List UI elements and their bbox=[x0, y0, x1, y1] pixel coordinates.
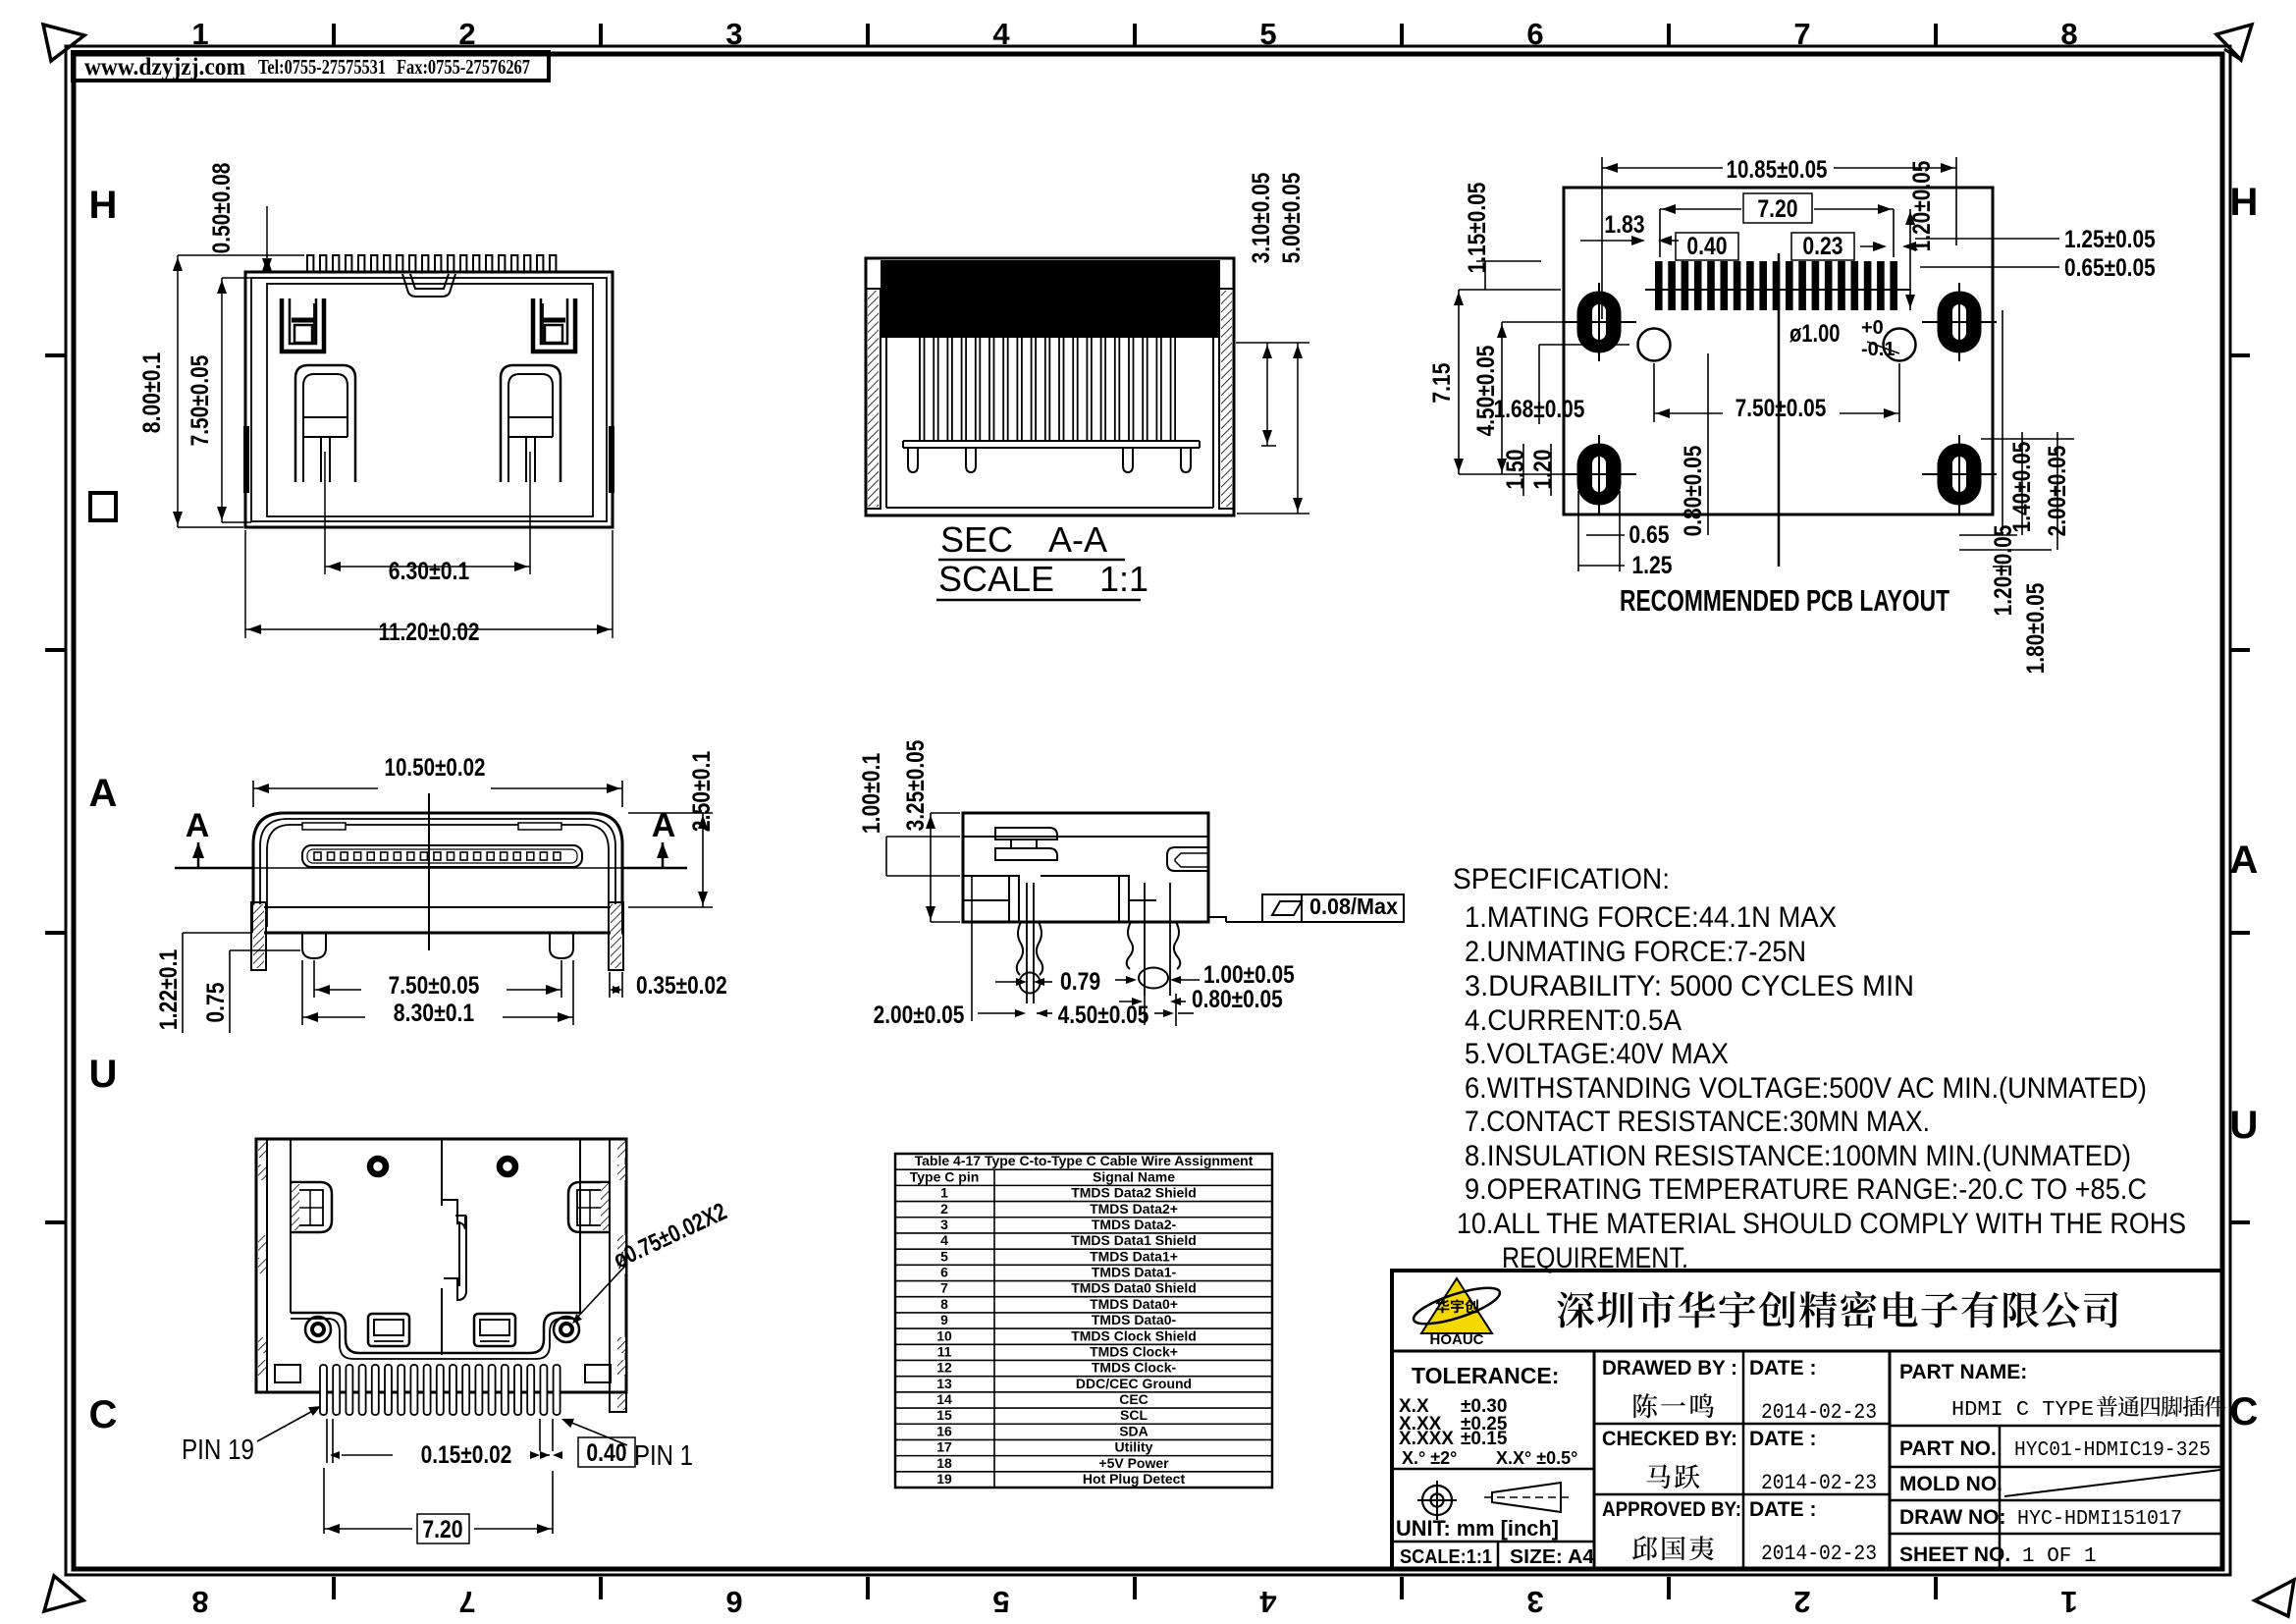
svg-text:5: 5 bbox=[992, 1585, 1009, 1619]
svg-text:7.50±0.05: 7.50±0.05 bbox=[389, 972, 480, 1000]
svg-text:6: 6 bbox=[1526, 17, 1543, 51]
svg-text:1.15±0.05: 1.15±0.05 bbox=[1464, 183, 1491, 274]
svg-text:5.00±0.05: 5.00±0.05 bbox=[1278, 173, 1306, 264]
svg-text:3.10±0.05: 3.10±0.05 bbox=[1248, 173, 1275, 264]
svg-text:±0.15: ±0.15 bbox=[1461, 1429, 1508, 1449]
svg-text:U: U bbox=[2230, 1104, 2259, 1147]
svg-text:HYC01-HDMIC19-325: HYC01-HDMIC19-325 bbox=[2014, 1439, 2211, 1462]
svg-text:7.50±0.05: 7.50±0.05 bbox=[1735, 395, 1827, 422]
svg-text:0.40: 0.40 bbox=[586, 1439, 626, 1467]
svg-text:1.00±0.1: 1.00±0.1 bbox=[858, 753, 885, 834]
svg-text:2: 2 bbox=[458, 17, 475, 51]
svg-text:HYC-HDMI151017: HYC-HDMI151017 bbox=[2017, 1508, 2182, 1531]
svg-text:8: 8 bbox=[940, 1296, 948, 1312]
svg-text:TOLERANCE:: TOLERANCE: bbox=[1412, 1363, 1559, 1388]
svg-text:4: 4 bbox=[992, 17, 1010, 51]
svg-text:MOLD NO.: MOLD NO. bbox=[1899, 1473, 2002, 1495]
svg-text:1 OF 1: 1 OF 1 bbox=[2022, 1545, 2097, 1568]
svg-text:UNIT: mm [inch]: UNIT: mm [inch] bbox=[1396, 1516, 1559, 1541]
svg-text:PART NAME:: PART NAME: bbox=[1899, 1361, 2027, 1383]
svg-text:16: 16 bbox=[936, 1423, 952, 1438]
svg-text:1.MATING FORCE:44.1N MAX: 1.MATING FORCE:44.1N MAX bbox=[1465, 901, 1837, 934]
svg-text:SIZE: A4: SIZE: A4 bbox=[1510, 1546, 1595, 1568]
svg-text:H: H bbox=[2230, 181, 2259, 224]
svg-text:TMDS Clock-: TMDS Clock- bbox=[1092, 1360, 1177, 1376]
svg-text:7: 7 bbox=[458, 1585, 475, 1619]
svg-text:7.50±0.05: 7.50±0.05 bbox=[187, 355, 214, 447]
svg-text:PART NO.: PART NO. bbox=[1899, 1437, 1997, 1460]
svg-text:1.20: 1.20 bbox=[1529, 449, 1557, 489]
svg-text:8.INSULATION RESISTANCE:100MN: 8.INSULATION RESISTANCE:100MN MIN.(UNMAT… bbox=[1465, 1140, 2131, 1172]
svg-text:TMDS Data0-: TMDS Data0- bbox=[1092, 1312, 1177, 1327]
svg-text:SPECIFICATION:: SPECIFICATION: bbox=[1453, 863, 1670, 895]
svg-text:H: H bbox=[89, 184, 118, 227]
svg-text:X.XXX: X.XXX bbox=[1399, 1429, 1454, 1449]
svg-text:5: 5 bbox=[940, 1248, 948, 1264]
svg-text:SHEET NO.: SHEET NO. bbox=[1899, 1543, 2010, 1566]
svg-text:4: 4 bbox=[940, 1232, 948, 1248]
svg-text:TMDS Data1+: TMDS Data1+ bbox=[1090, 1248, 1178, 1264]
svg-text:Signal Name: Signal Name bbox=[1093, 1168, 1175, 1184]
svg-text:6: 6 bbox=[725, 1585, 742, 1619]
svg-text:10.50±0.02: 10.50±0.02 bbox=[385, 754, 486, 782]
svg-text:TMDS Clock Shield: TMDS Clock Shield bbox=[1071, 1327, 1197, 1343]
svg-text:0.08/Max: 0.08/Max bbox=[1309, 893, 1398, 919]
svg-text:2: 2 bbox=[940, 1201, 948, 1217]
svg-text:HDMI C TYPE: HDMI C TYPE bbox=[1951, 1399, 2094, 1422]
svg-text:1.83: 1.83 bbox=[1604, 211, 1644, 239]
svg-text:+5V Power: +5V Power bbox=[1098, 1455, 1169, 1471]
svg-text:+0: +0 bbox=[1861, 317, 1884, 339]
svg-text:0.50±0.08: 0.50±0.08 bbox=[208, 163, 236, 254]
svg-text:CHECKED BY:: CHECKED BY: bbox=[1602, 1428, 1737, 1450]
svg-text:A-A: A-A bbox=[1048, 519, 1107, 560]
svg-text:TMDS Data2-: TMDS Data2- bbox=[1092, 1217, 1177, 1232]
svg-text:3.25±0.05: 3.25±0.05 bbox=[902, 740, 930, 832]
svg-text:ø1.00: ø1.00 bbox=[1789, 320, 1841, 348]
svg-text:3.DURABILITY: 5000 CYCLES MIN: 3.DURABILITY: 5000 CYCLES MIN bbox=[1465, 970, 1914, 1002]
svg-text:0.15±0.02: 0.15±0.02 bbox=[421, 1441, 512, 1469]
svg-text:DATE :: DATE : bbox=[1749, 1428, 1816, 1450]
svg-text:PIN 1: PIN 1 bbox=[634, 1440, 693, 1472]
svg-text:10.85±0.05: 10.85±0.05 bbox=[1727, 156, 1828, 184]
svg-text:4.50±0.05: 4.50±0.05 bbox=[1058, 1001, 1149, 1029]
svg-text:0.80±0.05: 0.80±0.05 bbox=[1680, 446, 1707, 537]
svg-text:Tel:0755-27575531: Tel:0755-27575531 bbox=[258, 55, 386, 79]
svg-text:8.00±0.1: 8.00±0.1 bbox=[138, 352, 166, 433]
svg-text:1.20±0.05: 1.20±0.05 bbox=[1990, 525, 2017, 617]
svg-text:10: 10 bbox=[936, 1327, 952, 1343]
svg-text:C: C bbox=[89, 1393, 118, 1436]
svg-text:12: 12 bbox=[936, 1360, 952, 1376]
svg-text:SCALE: SCALE bbox=[938, 559, 1054, 599]
svg-text:3: 3 bbox=[725, 17, 742, 51]
svg-text:CEC: CEC bbox=[1119, 1391, 1148, 1407]
svg-text:3: 3 bbox=[1526, 1585, 1543, 1619]
svg-text:X.° ±2°: X.° ±2° bbox=[1402, 1448, 1457, 1468]
svg-text:1.80±0.05: 1.80±0.05 bbox=[2022, 583, 2050, 675]
svg-text:2014-02-23: 2014-02-23 bbox=[1761, 1542, 1877, 1566]
svg-text:8: 8 bbox=[191, 1585, 208, 1619]
svg-text:SCALE:1:1: SCALE:1:1 bbox=[1400, 1546, 1492, 1568]
svg-text:5.VOLTAGE:40V MAX: 5.VOLTAGE:40V MAX bbox=[1465, 1038, 1729, 1070]
svg-text:1.50: 1.50 bbox=[1502, 449, 1529, 489]
svg-text:U: U bbox=[89, 1053, 118, 1096]
svg-text:1.25±0.05: 1.25±0.05 bbox=[2064, 226, 2156, 253]
svg-text:7.15: 7.15 bbox=[1428, 362, 1456, 403]
svg-text:8.30±0.1: 8.30±0.1 bbox=[394, 1000, 474, 1027]
svg-text:APPROVED BY:: APPROVED BY: bbox=[1602, 1498, 1741, 1521]
svg-text:6: 6 bbox=[940, 1265, 948, 1280]
svg-text:TMDS Data1 Shield: TMDS Data1 Shield bbox=[1071, 1232, 1197, 1248]
svg-text:3: 3 bbox=[940, 1217, 948, 1232]
svg-text:DATE :: DATE : bbox=[1749, 1498, 1816, 1521]
svg-text:15: 15 bbox=[936, 1407, 952, 1423]
svg-text:13: 13 bbox=[936, 1376, 952, 1391]
svg-text:7.20: 7.20 bbox=[422, 1516, 462, 1543]
svg-text:0.40: 0.40 bbox=[1686, 233, 1727, 260]
svg-text:1:1: 1:1 bbox=[1099, 559, 1148, 599]
svg-text:Fax:0755-27576267: Fax:0755-27576267 bbox=[397, 55, 530, 79]
svg-text:TMDS Data1-: TMDS Data1- bbox=[1092, 1265, 1177, 1280]
svg-text:11: 11 bbox=[937, 1343, 952, 1359]
svg-text:4: 4 bbox=[1259, 1585, 1277, 1619]
svg-text:7.CONTACT RESISTANCE:30MN MAX.: 7.CONTACT RESISTANCE:30MN MAX. bbox=[1465, 1106, 1930, 1138]
svg-text:DRAWED BY :: DRAWED BY : bbox=[1602, 1357, 1737, 1380]
svg-text:C: C bbox=[2230, 1390, 2259, 1434]
svg-text:SEC: SEC bbox=[940, 519, 1013, 560]
svg-text:PIN 19: PIN 19 bbox=[182, 1435, 254, 1466]
svg-text:1: 1 bbox=[2060, 1585, 2077, 1619]
svg-text:DDC/CEC Ground: DDC/CEC Ground bbox=[1076, 1376, 1192, 1391]
svg-text:17: 17 bbox=[936, 1439, 952, 1455]
svg-text:9: 9 bbox=[940, 1312, 948, 1327]
svg-text:10.ALL THE MATERIAL SHOULD COM: 10.ALL THE MATERIAL SHOULD COMPLY WITH T… bbox=[1457, 1208, 2186, 1240]
svg-text:www.dzyjzj.com: www.dzyjzj.com bbox=[84, 54, 245, 81]
svg-text:SCL: SCL bbox=[1120, 1407, 1148, 1423]
svg-text:TMDS Data2 Shield: TMDS Data2 Shield bbox=[1071, 1185, 1197, 1201]
svg-text:9.OPERATING TEMPERATURE RANGE:: 9.OPERATING TEMPERATURE RANGE:-20.C TO +… bbox=[1465, 1173, 2147, 1206]
svg-text:0.79: 0.79 bbox=[1060, 968, 1100, 996]
svg-text:1.25: 1.25 bbox=[1631, 552, 1672, 579]
svg-text:2.00±0.05: 2.00±0.05 bbox=[874, 1001, 965, 1029]
svg-text:DRAW NO:: DRAW NO: bbox=[1899, 1506, 2006, 1529]
svg-text:7: 7 bbox=[940, 1280, 948, 1296]
svg-text:RECOMMENDED PCB LAYOUT: RECOMMENDED PCB LAYOUT bbox=[1620, 583, 1949, 618]
svg-text:TMDS Data2+: TMDS Data2+ bbox=[1090, 1201, 1178, 1217]
svg-text:6.WITHSTANDING VOLTAGE:500V AC: 6.WITHSTANDING VOLTAGE:500V AC MIN.(UNMA… bbox=[1465, 1072, 2147, 1105]
svg-text:Hot Plug Detect: Hot Plug Detect bbox=[1083, 1471, 1186, 1487]
svg-text:1: 1 bbox=[940, 1185, 948, 1201]
svg-text:A: A bbox=[89, 772, 118, 815]
svg-text:2.UNMATING FORCE:7-25N: 2.UNMATING FORCE:7-25N bbox=[1465, 936, 1806, 968]
svg-text:DATE :: DATE : bbox=[1749, 1357, 1816, 1380]
svg-text:11.20±0.02: 11.20±0.02 bbox=[379, 619, 480, 646]
svg-text:14: 14 bbox=[936, 1391, 952, 1407]
svg-text:0.65±0.05: 0.65±0.05 bbox=[2064, 254, 2156, 282]
svg-text:1: 1 bbox=[191, 17, 208, 51]
svg-text:18: 18 bbox=[936, 1455, 952, 1471]
svg-text:1.22±0.1: 1.22±0.1 bbox=[155, 949, 183, 1030]
svg-text:Utility: Utility bbox=[1115, 1439, 1153, 1455]
svg-text:Table 4-17 Type C-to-Type C Ca: Table 4-17 Type C-to-Type C Cable Wire A… bbox=[915, 1153, 1254, 1168]
svg-text:6.30±0.1: 6.30±0.1 bbox=[389, 558, 469, 585]
svg-text:19: 19 bbox=[936, 1471, 952, 1487]
svg-text:0.23: 0.23 bbox=[1802, 233, 1842, 260]
svg-text:TMDS Clock+: TMDS Clock+ bbox=[1090, 1343, 1178, 1359]
svg-text:1.00±0.05: 1.00±0.05 bbox=[1203, 961, 1295, 989]
svg-text:2014-02-23: 2014-02-23 bbox=[1761, 1471, 1877, 1495]
svg-text:0.35±0.02: 0.35±0.02 bbox=[636, 972, 727, 1000]
svg-text:5: 5 bbox=[1259, 17, 1276, 51]
svg-text:2: 2 bbox=[1793, 1585, 1810, 1619]
svg-text:7.20: 7.20 bbox=[1757, 195, 1797, 223]
svg-text:2014-02-23: 2014-02-23 bbox=[1761, 1400, 1877, 1425]
svg-text:4.CURRENT:0.5A: 4.CURRENT:0.5A bbox=[1465, 1004, 1682, 1037]
svg-text:A: A bbox=[2230, 839, 2259, 882]
svg-text:0.65: 0.65 bbox=[1629, 521, 1669, 549]
svg-text:SDA: SDA bbox=[1119, 1423, 1148, 1438]
svg-text:0.75: 0.75 bbox=[202, 982, 230, 1022]
svg-text:HOAUC: HOAUC bbox=[1430, 1331, 1484, 1348]
svg-text:0.80±0.05: 0.80±0.05 bbox=[1192, 986, 1283, 1013]
svg-text:8: 8 bbox=[2060, 17, 2077, 51]
svg-text:7: 7 bbox=[1793, 17, 1810, 51]
svg-text:TMDS Data0+: TMDS Data0+ bbox=[1090, 1296, 1178, 1312]
svg-text:Type C pin: Type C pin bbox=[910, 1168, 980, 1184]
svg-text:TMDS Data0 Shield: TMDS Data0 Shield bbox=[1071, 1280, 1197, 1296]
svg-text:A: A bbox=[186, 807, 210, 844]
svg-text:X.X° ±0.5°: X.X° ±0.5° bbox=[1496, 1448, 1577, 1468]
